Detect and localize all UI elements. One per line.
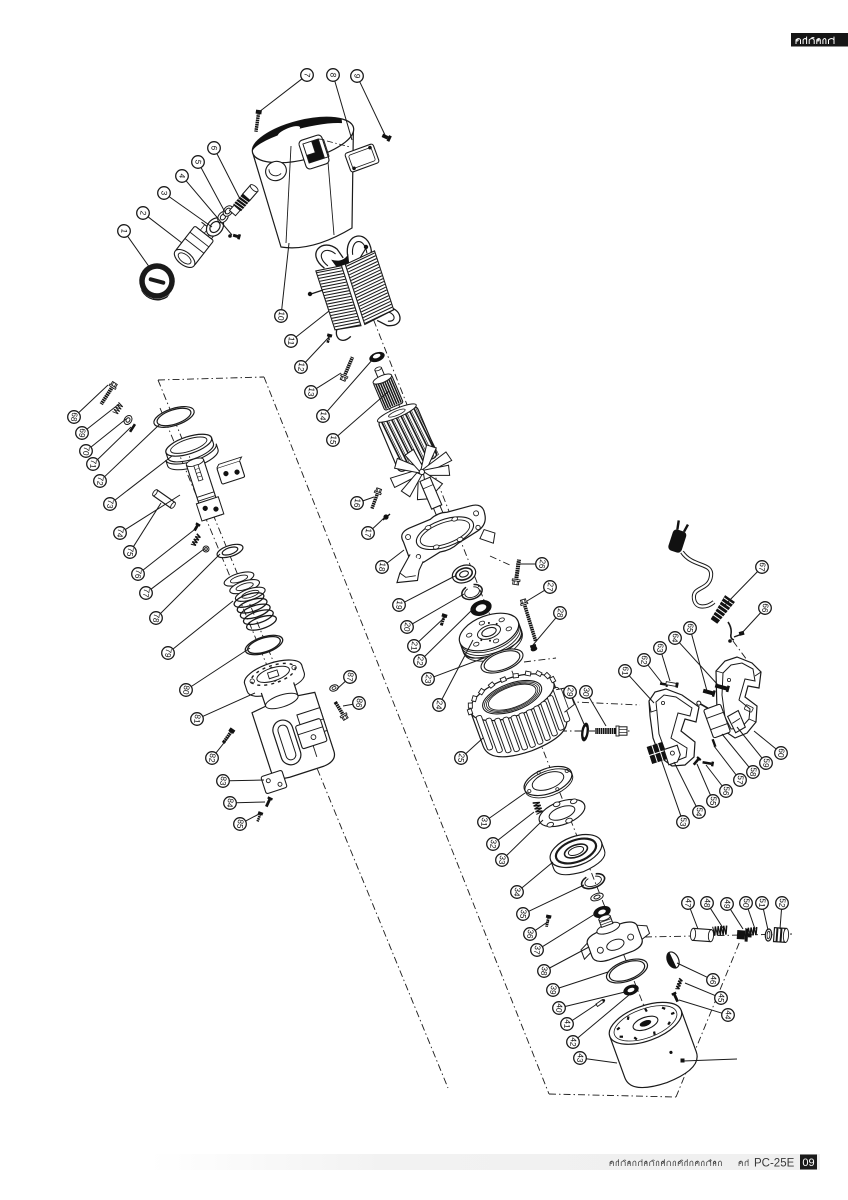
svg-text:24: 24: [434, 700, 444, 711]
svg-text:20: 20: [402, 622, 412, 633]
svg-text:68: 68: [69, 412, 79, 423]
svg-text:35: 35: [518, 909, 528, 920]
svg-text:77: 77: [141, 588, 151, 599]
svg-text:28: 28: [555, 608, 565, 619]
svg-text:62: 62: [639, 655, 649, 666]
svg-text:31: 31: [479, 817, 489, 828]
svg-text:11: 11: [286, 336, 296, 346]
svg-text:69: 69: [77, 428, 87, 439]
svg-text:73: 73: [105, 499, 115, 510]
svg-text:87: 87: [345, 672, 355, 683]
svg-text:46: 46: [708, 975, 718, 986]
svg-text:86: 86: [354, 698, 364, 709]
svg-text:74: 74: [115, 528, 125, 539]
svg-text:39: 39: [548, 985, 558, 996]
svg-text:19: 19: [394, 600, 404, 611]
svg-text:13: 13: [306, 387, 316, 398]
svg-text:26: 26: [537, 559, 547, 570]
svg-text:83: 83: [218, 776, 228, 787]
svg-text:82: 82: [207, 753, 217, 764]
svg-text:37: 37: [532, 945, 542, 956]
svg-text:56: 56: [721, 786, 731, 797]
svg-text:58: 58: [748, 767, 758, 778]
svg-text:66: 66: [760, 603, 770, 614]
svg-text:12: 12: [296, 362, 306, 373]
svg-text:67: 67: [757, 562, 767, 573]
svg-text:84: 84: [225, 798, 235, 809]
svg-text:57: 57: [735, 775, 745, 786]
svg-text:15: 15: [328, 435, 338, 446]
svg-text:59: 59: [761, 758, 771, 769]
svg-text:80: 80: [181, 685, 191, 696]
svg-text:36: 36: [525, 929, 535, 940]
svg-text:42: 42: [568, 1037, 578, 1048]
svg-text:79: 79: [163, 648, 173, 659]
svg-text:52: 52: [777, 898, 787, 909]
svg-text:72: 72: [95, 476, 105, 487]
svg-text:75: 75: [125, 547, 135, 558]
svg-text:33: 33: [497, 855, 507, 866]
svg-text:63: 63: [655, 643, 665, 654]
svg-text:32: 32: [488, 839, 498, 850]
svg-text:78: 78: [151, 613, 161, 624]
svg-text:29: 29: [565, 687, 575, 698]
svg-text:21: 21: [409, 641, 419, 652]
svg-text:64: 64: [670, 633, 680, 644]
svg-text:51: 51: [757, 898, 767, 909]
svg-text:76: 76: [133, 569, 143, 580]
svg-text:40: 40: [554, 1003, 564, 1014]
svg-text:55: 55: [708, 796, 718, 807]
svg-text:PC-25E: PC-25E: [754, 1158, 795, 1170]
svg-text:30: 30: [581, 687, 591, 698]
svg-text:54: 54: [694, 807, 704, 818]
svg-text:47: 47: [683, 898, 693, 909]
svg-text:14: 14: [318, 411, 328, 422]
svg-text:45: 45: [716, 993, 726, 1004]
svg-text:50: 50: [741, 898, 751, 909]
svg-text:23: 23: [423, 674, 433, 685]
svg-text:61: 61: [620, 666, 630, 677]
svg-text:49: 49: [722, 899, 732, 910]
svg-text:71: 71: [88, 459, 98, 470]
svg-text:53: 53: [678, 817, 688, 828]
svg-text:34: 34: [512, 887, 522, 898]
svg-text:27: 27: [545, 582, 555, 593]
svg-text:18: 18: [377, 562, 387, 573]
svg-text:17: 17: [363, 528, 373, 539]
svg-text:81: 81: [192, 714, 202, 725]
svg-text:65: 65: [685, 623, 695, 634]
svg-text:09: 09: [802, 1157, 814, 1169]
svg-text:60: 60: [776, 748, 786, 759]
svg-text:70: 70: [81, 446, 91, 457]
svg-text:10: 10: [276, 311, 286, 322]
svg-text:16: 16: [352, 498, 362, 509]
svg-text:85: 85: [235, 819, 245, 830]
svg-text:41: 41: [562, 1019, 572, 1030]
svg-text:48: 48: [702, 898, 712, 909]
svg-text:44: 44: [723, 1010, 733, 1021]
svg-text:38: 38: [539, 966, 549, 977]
svg-text:43: 43: [575, 1053, 585, 1064]
svg-text:25: 25: [456, 753, 466, 764]
svg-text:22: 22: [415, 656, 425, 667]
